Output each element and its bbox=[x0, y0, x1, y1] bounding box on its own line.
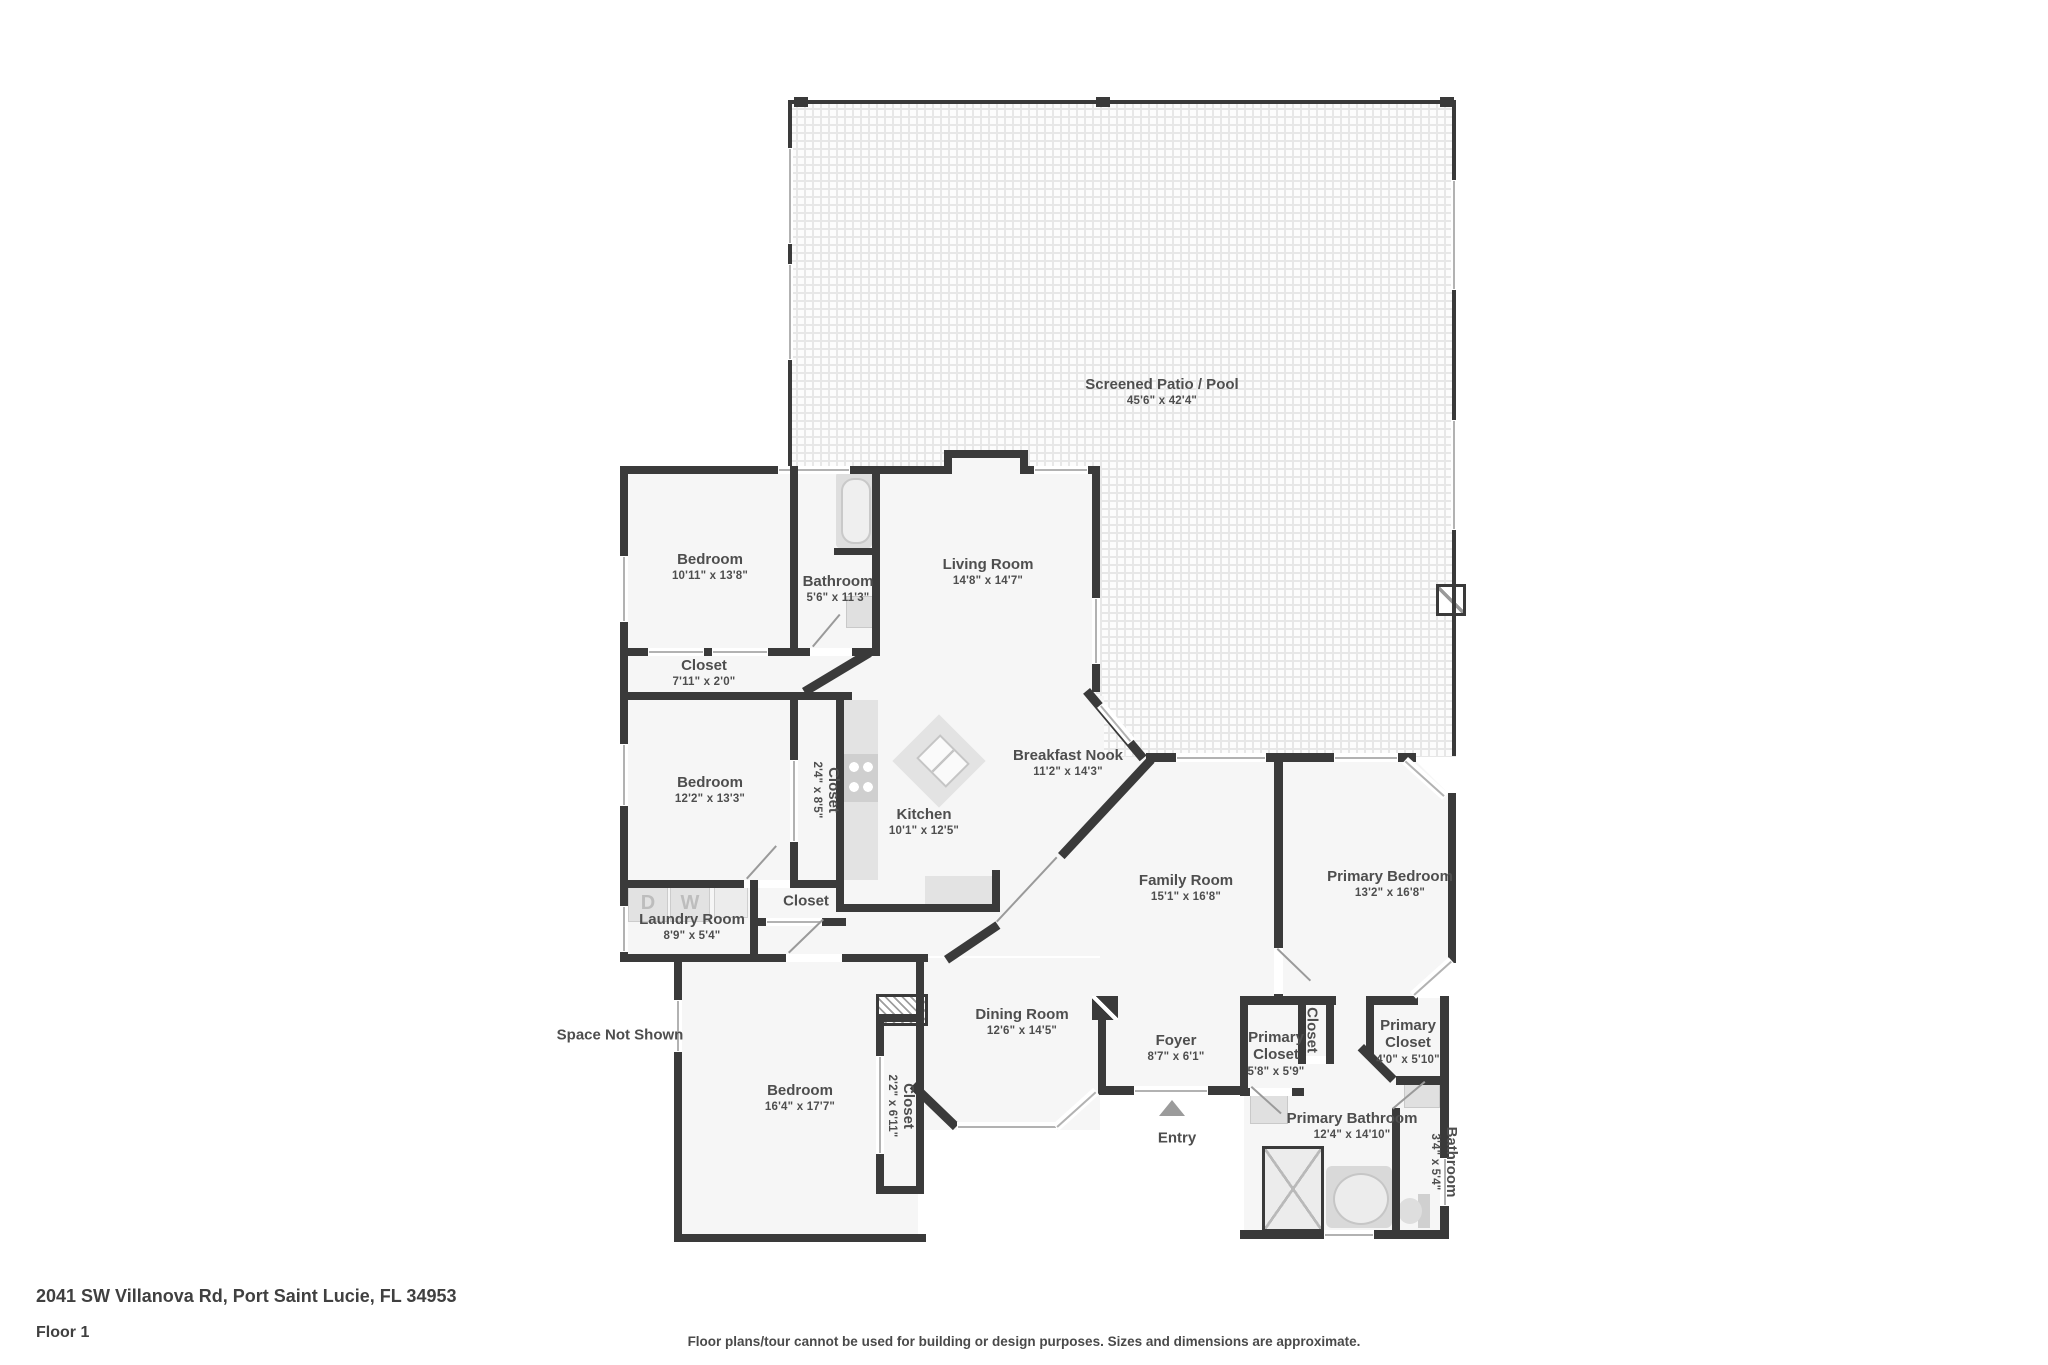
wall-segment bbox=[750, 880, 758, 962]
room-label-laundry-room: Laundry Room 8'9" x 5'4" bbox=[639, 911, 745, 943]
plan-element: Primary Bedroom bbox=[1327, 868, 1453, 885]
plan-element: 15'1" x 16'8" bbox=[1139, 891, 1233, 904]
window bbox=[778, 466, 850, 474]
room-label-family-room: Family Room 15'1" x 16'8" bbox=[1139, 872, 1233, 904]
stove-icon bbox=[844, 754, 878, 802]
entry-arrow-icon bbox=[1159, 1100, 1185, 1116]
plan-element: Bedroom bbox=[675, 774, 745, 791]
window bbox=[1134, 1086, 1208, 1095]
window bbox=[1176, 753, 1266, 762]
plan-element: Bathroom bbox=[1443, 1127, 1460, 1198]
room-label-primary-bathroom: Primary Bathroom 12'4" x 14'10" bbox=[1287, 1110, 1418, 1142]
toilet-bowl bbox=[1398, 1198, 1422, 1224]
plan-element: Foyer bbox=[1148, 1032, 1205, 1049]
room-fill bbox=[840, 696, 1104, 956]
wall-segment bbox=[1240, 996, 1336, 1005]
window bbox=[876, 1056, 884, 1154]
space-not-shown-label: Space Not Shown bbox=[557, 1027, 684, 1044]
wall-segment bbox=[674, 1234, 926, 1242]
window bbox=[1451, 180, 1457, 290]
plan-element: Closet bbox=[1303, 1007, 1320, 1053]
plan-element: Screened Patio / Pool bbox=[1085, 376, 1238, 393]
vanity-sink-icon bbox=[1250, 1094, 1288, 1124]
wall-segment bbox=[790, 466, 798, 656]
plan-element: Primary Bathroom bbox=[1287, 1110, 1418, 1127]
plan-element: 4'0" x 5'10" bbox=[1365, 1054, 1451, 1067]
room-label-primary-bedroom: Primary Bedroom 13'2" x 16'8" bbox=[1327, 868, 1453, 900]
plan-element: 3'4" x 5'4" bbox=[1428, 1127, 1441, 1198]
wall-segment bbox=[788, 100, 1456, 104]
plan-element: 8'9" x 5'4" bbox=[639, 930, 745, 943]
wall-segment bbox=[872, 466, 880, 656]
window bbox=[1451, 420, 1457, 530]
plan-element: 10'1" x 12'5" bbox=[889, 825, 959, 838]
plan-element: 45'6" x 42'4" bbox=[1085, 395, 1238, 408]
bathtub-basin bbox=[841, 478, 871, 544]
plan-element: 12'2" x 13'3" bbox=[675, 793, 745, 806]
room-label-bedroom-1: Bedroom 10'11" x 13'8" bbox=[672, 551, 748, 583]
window bbox=[787, 264, 793, 360]
plan-element: 13'2" x 16'8" bbox=[1327, 887, 1453, 900]
room-label-bathroom-1: Bathroom 5'6" x 11'3" bbox=[803, 573, 874, 605]
plan-element: 16'4" x 17'7" bbox=[765, 1101, 835, 1114]
entry-label: Entry bbox=[1158, 1130, 1196, 1147]
room-fill bbox=[938, 1070, 1098, 1128]
plan-element: Breakfast Nook bbox=[1013, 747, 1123, 764]
plan-element: 5'8" x 5'9" bbox=[1233, 1066, 1319, 1079]
plan-element: Laundry Room bbox=[639, 911, 745, 928]
wall-segment bbox=[1098, 1016, 1106, 1090]
window bbox=[787, 148, 793, 244]
wall-segment bbox=[674, 954, 682, 1242]
plan-element: Closet bbox=[673, 657, 736, 674]
window bbox=[620, 556, 628, 622]
plan-element: Bedroom bbox=[765, 1082, 835, 1099]
window bbox=[766, 918, 822, 926]
wall-segment bbox=[1370, 996, 1418, 1005]
window bbox=[712, 648, 768, 656]
patio-screen-box bbox=[1436, 584, 1466, 616]
wall-segment bbox=[836, 904, 1000, 912]
window bbox=[620, 744, 628, 806]
room-label-breakfast-nook: Breakfast Nook 11'2" x 14'3" bbox=[1013, 747, 1123, 779]
plan-element: 12'6" x 14'5" bbox=[975, 1025, 1068, 1038]
wall-segment bbox=[1326, 996, 1334, 1064]
wall-segment bbox=[794, 97, 808, 107]
window bbox=[1334, 753, 1398, 762]
room-label-closet-2: Closet 2'4" x 8'5" bbox=[810, 762, 842, 819]
room-label-closet-3: Closet 2'2" x 6'11" bbox=[885, 1075, 917, 1138]
plan-element: 7'11" x 2'0" bbox=[673, 676, 736, 689]
wall-segment bbox=[916, 954, 924, 1022]
floor-plan-page: { "page": { "address": "2041 SW Villanov… bbox=[0, 0, 2048, 1365]
wall-segment bbox=[620, 692, 852, 700]
disclaimer-text: Floor plans/tour cannot be used for buil… bbox=[0, 1334, 2048, 1349]
room-label-closet-1: Closet 7'11" x 2'0" bbox=[673, 657, 736, 689]
room-label-closet-4: Closet bbox=[1303, 1007, 1320, 1053]
window bbox=[1092, 598, 1100, 664]
window bbox=[620, 906, 628, 952]
room-label-closet-hall: Closet bbox=[783, 892, 829, 909]
garden-tub-basin bbox=[1333, 1173, 1389, 1225]
door-opening bbox=[786, 954, 842, 962]
address-text: 2041 SW Villanova Rd, Port Saint Lucie, … bbox=[36, 1286, 457, 1307]
wall-segment bbox=[1440, 97, 1454, 107]
room-label-foyer: Foyer 8'7" x 6'1" bbox=[1148, 1032, 1205, 1064]
plan-element: Family Room bbox=[1139, 872, 1233, 889]
room-label-dining-room: Dining Room 12'6" x 14'5" bbox=[975, 1006, 1068, 1038]
wall-segment bbox=[620, 880, 844, 888]
plan-element: 2'2" x 6'11" bbox=[885, 1075, 898, 1138]
plan-element: Bedroom bbox=[672, 551, 748, 568]
plan-element: Primary Closet bbox=[1365, 1017, 1451, 1052]
window bbox=[1324, 1230, 1374, 1239]
window bbox=[957, 1122, 1057, 1131]
plan-element: 12'4" x 14'10" bbox=[1287, 1129, 1418, 1142]
kitchen-island bbox=[925, 876, 993, 904]
window bbox=[790, 760, 798, 842]
shower-icon bbox=[1262, 1146, 1324, 1232]
plan-element: 2'4" x 8'5" bbox=[810, 762, 823, 819]
room-label-bedroom-3: Bedroom 16'4" x 17'7" bbox=[765, 1082, 835, 1114]
window bbox=[648, 648, 704, 656]
plan-element: 8'7" x 6'1" bbox=[1148, 1051, 1205, 1064]
plan-element: Closet bbox=[825, 762, 842, 819]
plan-element: Dining Room bbox=[975, 1006, 1068, 1023]
wall-segment bbox=[620, 954, 928, 962]
plan-element: Bathroom bbox=[803, 573, 874, 590]
door-opening bbox=[810, 648, 852, 656]
room-label-kitchen: Kitchen 10'1" x 12'5" bbox=[889, 806, 959, 838]
wall-segment bbox=[1096, 97, 1110, 107]
window bbox=[1034, 466, 1088, 474]
plan-element: 11'2" x 14'3" bbox=[1013, 766, 1123, 779]
plan-element: Closet bbox=[900, 1075, 917, 1138]
floor-plan: D W bbox=[0, 0, 2048, 1365]
wall-segment bbox=[944, 450, 1028, 458]
room-label-primary-closet-2: Primary Closet 4'0" x 5'10" bbox=[1365, 1017, 1451, 1067]
plan-element: Closet bbox=[783, 892, 829, 909]
wall-segment bbox=[1020, 450, 1028, 474]
wall-segment bbox=[620, 466, 628, 962]
wall-segment bbox=[944, 450, 952, 474]
plan-element: 5'6" x 11'3" bbox=[803, 592, 874, 605]
plan-element: 14'8" x 14'7" bbox=[943, 575, 1034, 588]
plan-element: Living Room bbox=[943, 556, 1034, 573]
plan-element: Kitchen bbox=[889, 806, 959, 823]
room-label-living-room: Living Room 14'8" x 14'7" bbox=[943, 556, 1034, 588]
room-label-screened-patio-pool: Screened Patio / Pool 45'6" x 42'4" bbox=[1085, 376, 1238, 408]
plan-element: 10'11" x 13'8" bbox=[672, 570, 748, 583]
room-label-bedroom-2: Bedroom 12'2" x 13'3" bbox=[675, 774, 745, 806]
room-label-bathroom-2: Bathroom 3'4" x 5'4" bbox=[1428, 1127, 1460, 1198]
wall-segment bbox=[992, 870, 1000, 912]
